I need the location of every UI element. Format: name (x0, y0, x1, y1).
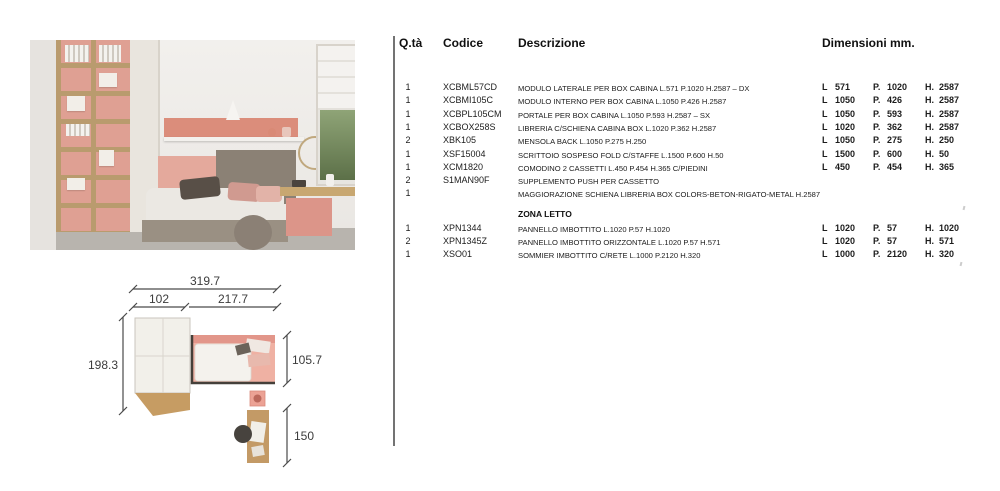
print-artifact (963, 206, 966, 210)
dim-l-label: L (822, 223, 828, 234)
box-decor (282, 127, 291, 137)
bookshelf (56, 40, 140, 232)
dim-l-value: 1020 (835, 122, 855, 133)
dim-l-label: L (822, 122, 828, 133)
dimensions-header: Dimensioni mm. (822, 36, 915, 50)
dim-p-label: P. (873, 162, 880, 173)
code-cell: XPN1344 (443, 223, 482, 234)
desk (280, 187, 355, 196)
dim-l-value: 571 (835, 82, 850, 93)
qty-cell: 1 (399, 249, 417, 260)
table-row: 1 XCBMI105C MODULO INTERNO PER BOX CABIN… (395, 95, 995, 107)
code-cell: XPN1345Z (443, 236, 487, 247)
desc-cell: LIBRERIA C/SCHIENA CABINA BOX L.1020 P.3… (518, 123, 716, 134)
table-row: 1 XCBOX258S LIBRERIA C/SCHIENA CABINA BO… (395, 122, 995, 134)
qty-cell: 1 (399, 223, 417, 234)
dim-p-value: 362 (887, 122, 902, 133)
dim-h-value: 2587 (939, 109, 959, 120)
dim-h-value: 1020 (939, 223, 959, 234)
dim-p-value: 426 (887, 95, 902, 106)
desc-cell: PORTALE PER BOX CABINA L.1050 P.593 H.25… (518, 110, 710, 121)
qty-cell: 1 (399, 149, 417, 160)
qty-cell: 2 (399, 175, 417, 186)
dim-h-label: H. (925, 109, 934, 120)
catalog-sheet: 319.7 102 217.7 198.3 105.7 150 Q.tà Cod… (0, 0, 1000, 491)
dim-height-total: 198.3 (88, 358, 118, 372)
box-decor (99, 150, 114, 166)
books-decor (65, 45, 89, 62)
table-row: 2 XPN1345Z PANNELLO IMBOTTITO ORIZZONTAL… (395, 236, 995, 248)
window-shade (318, 46, 355, 110)
box-decor (67, 178, 85, 190)
pillow (256, 186, 282, 202)
desk-item (292, 180, 306, 187)
dim-l-value: 1050 (835, 109, 855, 120)
plan-stool (250, 391, 265, 406)
dim-p-value: 454 (887, 162, 902, 173)
qty-cell: 1 (399, 95, 417, 106)
dim-p-value: 2120 (887, 249, 907, 260)
code-header: Codice (443, 36, 483, 50)
dim-h-value: 2587 (939, 122, 959, 133)
table-row: 2 XBK105 MENSOLA BACK L.1050 P.275 H.250… (395, 135, 995, 147)
table-row: 1 XCBPL105CM PORTALE PER BOX CABINA L.10… (395, 109, 995, 121)
dim-l-label: L (822, 135, 828, 146)
wall-shelf (164, 118, 298, 138)
code-cell: XCBPL105CM (443, 109, 502, 120)
dim-h-label: H. (925, 149, 934, 160)
floor-plan: 319.7 102 217.7 198.3 105.7 150 (78, 272, 348, 484)
plan-bed (192, 335, 275, 383)
qty-cell: 1 (399, 82, 417, 93)
desc-cell: MODULO INTERNO PER BOX CABINA L.1050 P.4… (518, 96, 726, 107)
dim-h-label: H. (925, 135, 934, 146)
dim-h-label: H. (925, 162, 934, 173)
dim-l-label: L (822, 149, 828, 160)
dim-p-value: 275 (887, 135, 902, 146)
dim-h-label: H. (925, 249, 934, 260)
code-cell: XCBMI105C (443, 95, 493, 106)
box-decor (67, 96, 85, 111)
plan-chair (234, 425, 252, 443)
dim-l-label: L (822, 82, 828, 93)
dim-p-label: P. (873, 95, 880, 106)
dim-p-value: 57 (887, 236, 897, 247)
ottoman (234, 215, 272, 250)
dim-l-label: L (822, 249, 828, 260)
desc-cell: PANNELLO IMBOTTITO ORIZZONTALE L.1020 P.… (518, 237, 720, 248)
code-cell: XCBOX258S (443, 122, 496, 133)
qty-cell: 2 (399, 135, 417, 146)
dim-p-value: 593 (887, 109, 902, 120)
dim-p-label: P. (873, 236, 880, 247)
dim-h-label: H. (925, 223, 934, 234)
table-row: 1 MAGGIORAZIONE SCHIENA LIBRERIA BOX COL… (395, 188, 995, 200)
vase-decor (268, 128, 276, 137)
dim-h-value: 2587 (939, 95, 959, 106)
dim-p-label: P. (873, 109, 880, 120)
dim-h-value: 571 (939, 236, 954, 247)
dim-l-value: 1050 (835, 135, 855, 146)
dim-width-left: 102 (149, 292, 169, 306)
dim-h-value: 250 (939, 135, 954, 146)
dim-l-label: L (822, 95, 828, 106)
code-cell: XSO01 (443, 249, 472, 260)
dim-p-label: P. (873, 135, 880, 146)
dim-h-value: 50 (939, 149, 949, 160)
dim-p-label: P. (873, 223, 880, 234)
table-row: 1 XSF15004 SCRITTOIO SOSPESO FOLD C/STAF… (395, 149, 995, 161)
pillow (179, 176, 221, 200)
qty-cell: 1 (399, 162, 417, 173)
dim-total-width: 319.7 (190, 274, 220, 288)
room-photo (30, 40, 355, 250)
table-row: 1 XCBML57CD MODULO LATERALE PER BOX CABI… (395, 82, 995, 94)
sail-decor (226, 100, 240, 120)
dim-l-value: 450 (835, 162, 850, 173)
dim-h-label: H. (925, 95, 934, 106)
dim-l-label: L (822, 236, 828, 247)
dim-l-value: 1000 (835, 249, 855, 260)
dim-l-label: L (822, 109, 828, 120)
dim-l-value: 1050 (835, 95, 855, 106)
dim-h-value: 2587 (939, 82, 959, 93)
code-cell: XSF15004 (443, 149, 486, 160)
desc-cell: SOMMIER IMBOTTITO C/RETE L.1000 P.2120 H… (518, 250, 700, 261)
qty-cell: 2 (399, 236, 417, 247)
code-cell: S1MAN90F (443, 175, 490, 186)
dim-bed-depth: 105.7 (292, 353, 322, 367)
qty-header: Q.tà (399, 36, 422, 50)
desc-cell: MAGGIORAZIONE SCHIENA LIBRERIA BOX COLOR… (518, 189, 820, 200)
qty-cell: 1 (399, 122, 417, 133)
window-greenery (320, 110, 355, 180)
window (316, 44, 355, 186)
wall-shelf-ledge (164, 137, 304, 141)
books-decor (66, 124, 90, 136)
dim-h-value: 365 (939, 162, 954, 173)
dim-width-right: 217.7 (218, 292, 248, 306)
desk-vase (326, 174, 334, 186)
drawer-unit (286, 198, 332, 236)
dim-desk-depth: 150 (294, 429, 314, 443)
qty-cell: 1 (399, 109, 417, 120)
books-decor (99, 45, 121, 62)
dim-p-label: P. (873, 149, 880, 160)
table-row: 2 S1MAN90F SUPPLEMENTO PUSH PER CASSETTO (395, 175, 995, 187)
desc-cell: SUPPLEMENTO PUSH PER CASSETTO (518, 176, 659, 187)
table-row: 1 XSO01 SOMMIER IMBOTTITO C/RETE L.1000 … (395, 249, 995, 261)
code-cell: XCM1820 (443, 162, 483, 173)
print-artifact (960, 262, 963, 266)
qty-cell: 1 (399, 188, 417, 199)
dim-p-label: P. (873, 249, 880, 260)
left-wall (30, 40, 56, 250)
dim-l-value: 1500 (835, 149, 855, 160)
dim-l-value: 1020 (835, 223, 855, 234)
desc-cell: SCRITTOIO SOSPESO FOLD C/STAFFE L.1500 P… (518, 150, 724, 161)
dim-l-label: L (822, 162, 828, 173)
dim-l-value: 1020 (835, 236, 855, 247)
table-row: 1 XPN1344 PANNELLO IMBOTTITO L.1020 P.57… (395, 223, 995, 235)
description-header: Descrizione (518, 36, 585, 50)
dim-h-label: H. (925, 122, 934, 133)
dim-p-value: 600 (887, 149, 902, 160)
dim-p-label: P. (873, 122, 880, 133)
section-title-zona-letto: ZONA LETTO (518, 209, 572, 219)
code-cell: XBK105 (443, 135, 476, 146)
desc-cell: MODULO LATERALE PER BOX CABINA L.571 P.1… (518, 83, 749, 94)
dim-h-label: H. (925, 82, 934, 93)
code-cell: XCBML57CD (443, 82, 497, 93)
dim-h-label: H. (925, 236, 934, 247)
dim-p-value: 1020 (887, 82, 907, 93)
dim-p-label: P. (873, 82, 880, 93)
plan-desk (234, 410, 269, 463)
plan-wardrobe (135, 318, 190, 416)
desc-cell: COMODINO 2 CASSETTI L.450 P.454 H.365 C/… (518, 163, 708, 174)
box-decor (99, 73, 117, 87)
desc-cell: MENSOLA BACK L.1050 P.275 H.250 (518, 136, 646, 147)
dim-p-value: 57 (887, 223, 897, 234)
desc-cell: PANNELLO IMBOTTITO L.1020 P.57 H.1020 (518, 224, 670, 235)
table-row: 1 XCM1820 COMODINO 2 CASSETTI L.450 P.45… (395, 162, 995, 174)
dim-h-value: 320 (939, 249, 954, 260)
